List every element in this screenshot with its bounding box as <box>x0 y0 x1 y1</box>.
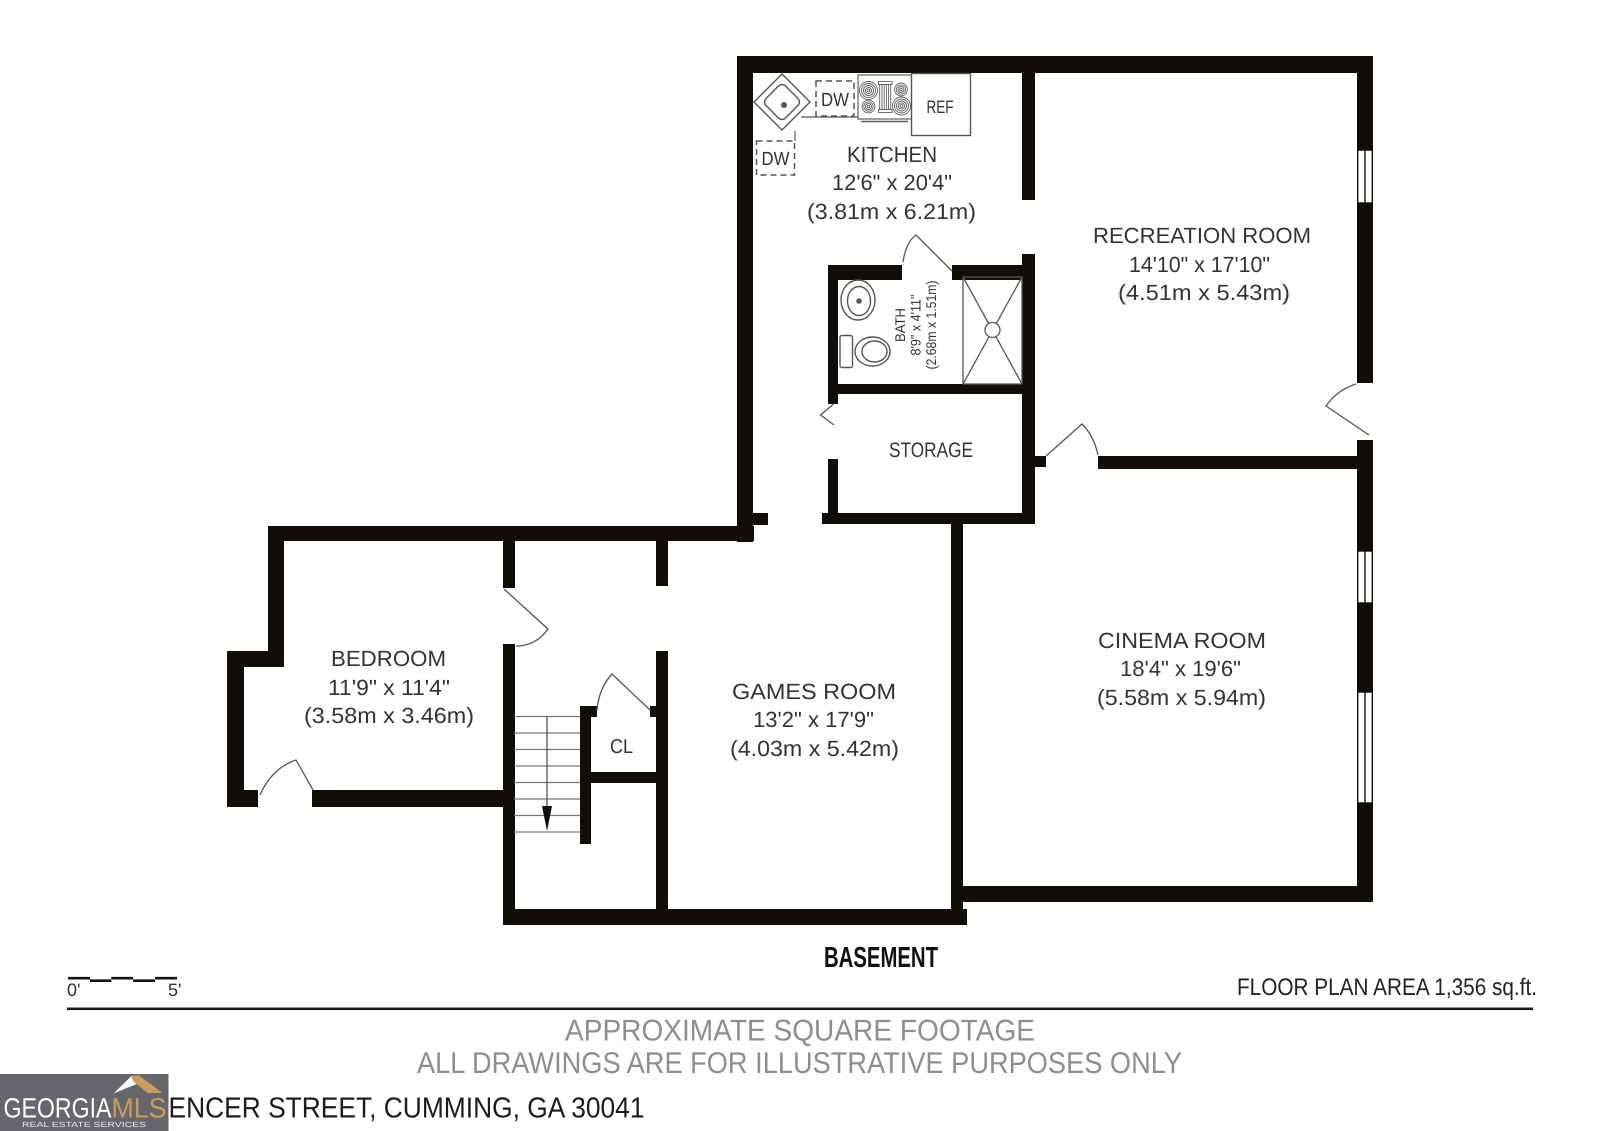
svg-text:0': 0' <box>67 980 80 1000</box>
svg-text:REF: REF <box>927 97 954 117</box>
svg-text:FLOOR PLAN AREA 1,356 sq.ft.: FLOOR PLAN AREA 1,356 sq.ft. <box>1237 974 1537 1001</box>
svg-text:DW: DW <box>821 90 849 111</box>
svg-text:(5.58m x 5.94m): (5.58m x 5.94m) <box>1097 685 1266 710</box>
svg-text:BEDROOM: BEDROOM <box>331 646 446 671</box>
svg-text:BATH: BATH <box>892 308 908 342</box>
svg-text:REAL ESTATE SERVICES: REAL ESTATE SERVICES <box>22 1120 146 1129</box>
svg-text:8'9" x 4'11": 8'9" x 4'11" <box>908 294 924 355</box>
svg-text:DW: DW <box>762 149 790 170</box>
svg-text:ALL DRAWINGS ARE FOR ILLUSTRAT: ALL DRAWINGS ARE FOR ILLUSTRATIVE PURPOS… <box>417 1047 1182 1080</box>
svg-text:5': 5' <box>168 980 181 1000</box>
svg-text:(4.03m x 5.42m): (4.03m x 5.42m) <box>730 736 899 761</box>
svg-text:MLS: MLS <box>112 1093 167 1124</box>
svg-text:CL: CL <box>610 736 633 758</box>
svg-text:KITCHEN: KITCHEN <box>847 142 937 167</box>
svg-text:11'9" x 11'4": 11'9" x 11'4" <box>328 675 450 700</box>
svg-text:(3.58m x 3.46m): (3.58m x 3.46m) <box>304 703 474 728</box>
svg-text:14'10" x 17'10": 14'10" x 17'10" <box>1129 252 1270 277</box>
svg-text:GEORGIA: GEORGIA <box>4 1093 112 1124</box>
svg-text:CINEMA ROOM: CINEMA ROOM <box>1098 628 1266 653</box>
svg-text:APPROXIMATE SQUARE FOOTAGE: APPROXIMATE SQUARE FOOTAGE <box>565 1015 1035 1048</box>
svg-text:STORAGE: STORAGE <box>889 439 973 462</box>
svg-text:(4.51m x 5.43m): (4.51m x 5.43m) <box>1118 280 1290 305</box>
svg-text:(2.68m x 1.51m): (2.68m x 1.51m) <box>923 281 939 370</box>
svg-text:12'6" x 20'4": 12'6" x 20'4" <box>832 170 952 195</box>
svg-text:RECREATION ROOM: RECREATION ROOM <box>1093 223 1311 248</box>
svg-text:BASEMENT: BASEMENT <box>824 942 938 974</box>
svg-text:GAMES ROOM: GAMES ROOM <box>732 679 896 704</box>
svg-text:18'4" x 19'6": 18'4" x 19'6" <box>1120 656 1241 681</box>
svg-text:(3.81m x 6.21m): (3.81m x 6.21m) <box>807 199 976 224</box>
svg-text:ENCER STREET, CUMMING, GA 3004: ENCER STREET, CUMMING, GA 30041 <box>169 1093 645 1125</box>
svg-text:13'2" x 17'9": 13'2" x 17'9" <box>753 707 874 732</box>
